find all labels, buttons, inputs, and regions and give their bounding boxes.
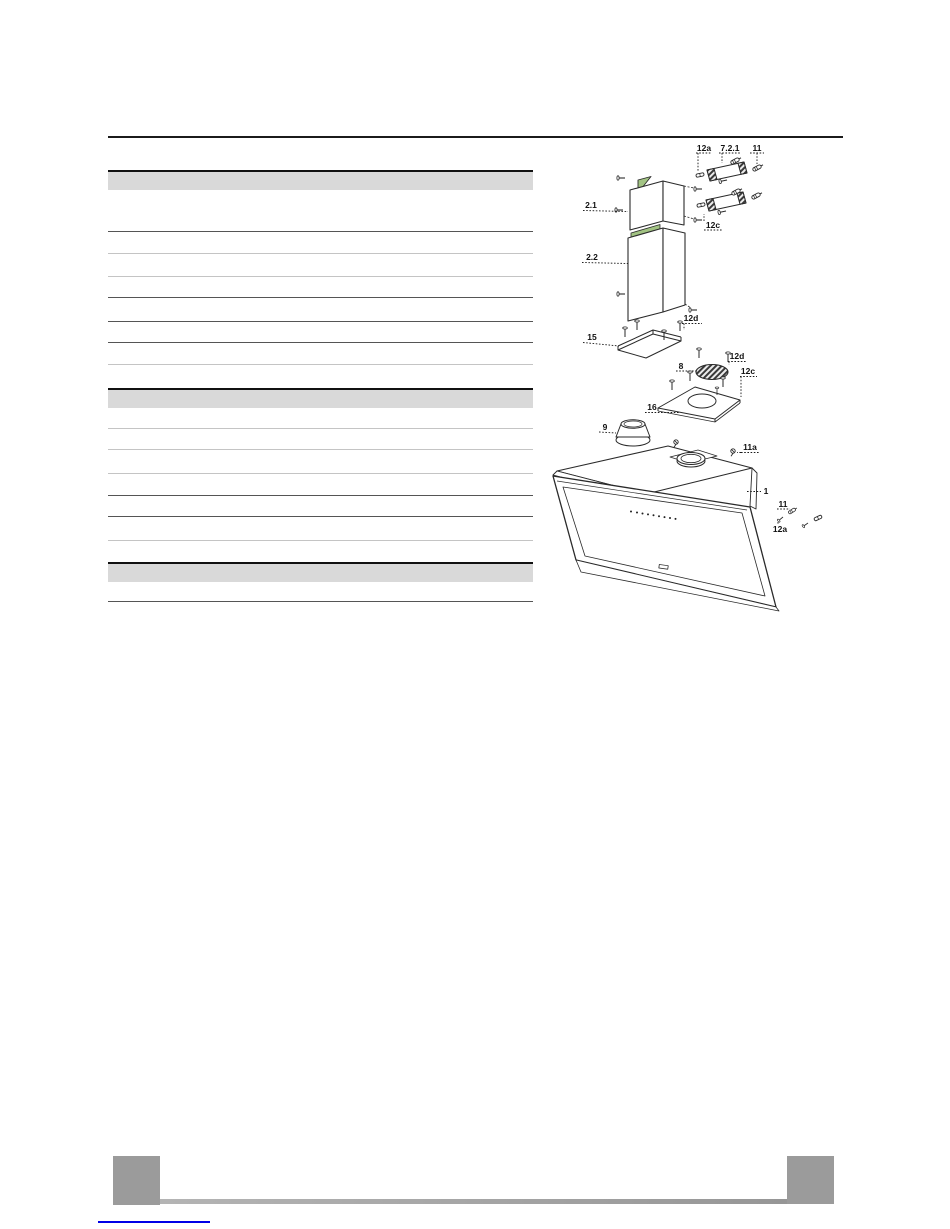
table-row — [108, 429, 533, 450]
table-row — [108, 322, 533, 343]
table-section-header — [108, 390, 533, 408]
table-section-2 — [108, 388, 533, 563]
part-label-15: 15 — [587, 332, 597, 342]
hood-body — [553, 440, 779, 611]
chimney-upper-section — [630, 177, 684, 231]
chimney-lower-section — [628, 225, 685, 322]
part-label-22: 2.2 — [586, 252, 598, 262]
part-label-16: 16 — [647, 402, 657, 412]
table-row — [108, 277, 533, 298]
part-label-1: 1 — [764, 486, 769, 496]
manual-page: 12a 7.2.1 11 2.1 12c 2.2 12d 15 8 12d 12 — [0, 0, 950, 1229]
table-row — [108, 450, 533, 474]
logo-plate — [659, 564, 668, 569]
table-section-header — [108, 172, 533, 190]
outlet-grille — [696, 348, 730, 380]
table-row — [108, 496, 533, 517]
part-label-11a: 11a — [743, 442, 757, 452]
part-label-12c-upper: 12c — [706, 220, 720, 230]
table-row — [108, 365, 533, 388]
header-rule — [108, 136, 843, 138]
table-row — [108, 474, 533, 496]
table-row — [108, 517, 533, 541]
footer-bar — [160, 1199, 787, 1204]
part-label-12a: 12a — [697, 143, 711, 153]
wall-bracket — [706, 192, 746, 211]
footer-link[interactable] — [98, 1218, 210, 1223]
part-label-721: 7.2.1 — [721, 143, 740, 153]
table-row — [108, 408, 533, 430]
reducing-flange — [616, 420, 650, 446]
part-label-12a-bottom: 12a — [773, 524, 787, 534]
part-label-12d-lower: 12d — [730, 351, 745, 361]
part-label-11-top: 11 — [753, 143, 762, 153]
hood-bolt-icon — [731, 449, 735, 456]
table-section-3 — [108, 562, 533, 602]
footer-page-box-right — [787, 1156, 834, 1204]
part-label-8: 8 — [679, 361, 684, 371]
part-label-21: 2.1 — [585, 200, 597, 210]
table-row — [108, 232, 533, 254]
wall-bracket — [707, 162, 747, 181]
table-section-1 — [108, 170, 533, 388]
table-row — [108, 541, 533, 562]
part-label-12d-upper: 12d — [684, 313, 699, 323]
table-row — [108, 298, 533, 322]
part-label-11-bottom: 11 — [779, 499, 788, 509]
table-row — [108, 582, 533, 602]
table-row — [108, 190, 533, 232]
part-label-9: 9 — [603, 422, 608, 432]
table-row — [108, 254, 533, 277]
hood-bolt-icon — [674, 440, 678, 447]
part-label-12c-lower: 12c — [741, 366, 755, 376]
exploded-diagram: 12a 7.2.1 11 2.1 12c 2.2 12d 15 8 12d 12 — [530, 140, 950, 630]
footer-page-box-left — [113, 1156, 160, 1205]
table-row — [108, 343, 533, 365]
deflector-rail — [618, 320, 682, 358]
mounting-plate — [658, 371, 740, 422]
parts-table — [108, 170, 533, 602]
table-section-header — [108, 564, 533, 582]
